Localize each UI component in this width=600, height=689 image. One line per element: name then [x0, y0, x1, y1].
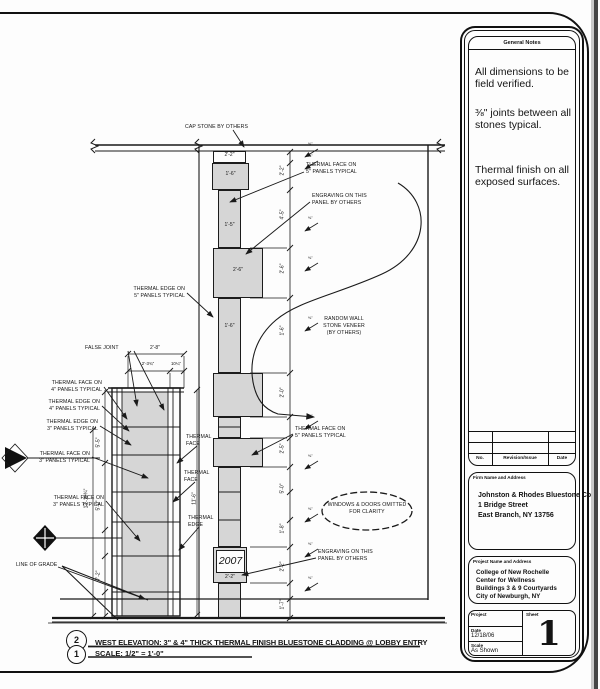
drawing-sheet: 2007 — [0, 0, 600, 689]
string-dim: 1'-6" — [281, 321, 286, 341]
string-dim: 5'-0" — [281, 479, 286, 499]
joint-marker-label: ⅜" — [308, 155, 313, 159]
string-dim: 1'-8" — [281, 519, 286, 539]
stone-column-segment — [218, 298, 241, 373]
sheet-number: 1 — [522, 612, 576, 656]
engraving-2007-text: 2007 — [216, 550, 245, 573]
annotation-thermal-face-3a: THERMAL FACE ON 3" PANELS TYPICAL — [30, 451, 90, 465]
dim-2007: 2'-2" — [213, 575, 247, 580]
joint-marker-label: ⅜" — [308, 455, 313, 459]
joint-marker-label: ⅜" — [308, 143, 313, 147]
annotation-thermal-edge-3: THERMAL EDGE ON 3" PANELS TYPICAL — [38, 419, 98, 433]
project-line3: Buildings 3 & 9 Courtyards — [476, 585, 557, 592]
dim-pillar-height: 11'-6" — [193, 487, 198, 511]
joint-marker-label: ⅜" — [308, 257, 313, 261]
revision-col-date: Date — [548, 456, 576, 461]
annotation-engraving-bottom: ENGRAVING ON THIS PANEL BY OTHERS — [318, 549, 373, 563]
dim-col1: 1'-5" — [212, 223, 247, 228]
dim-pillar-width2: 2'-3¾" — [128, 362, 168, 366]
joint-marker-label: ⅜" — [308, 317, 313, 321]
string-dim: 2'-6" — [281, 259, 286, 279]
dim-left-c: 7'-2" — [97, 564, 102, 588]
general-notes-title-rule — [469, 49, 575, 50]
string-dim: 2'-2" — [281, 557, 286, 577]
detail-number-top-text: 2 — [74, 635, 79, 645]
stone-panel — [213, 438, 263, 467]
string-dim: 4'-5" — [281, 205, 286, 225]
dim-pillar-width3: 10¼" — [164, 362, 188, 366]
stone-column-segment — [218, 190, 241, 248]
stone-column-segment — [218, 417, 241, 438]
stone-column-segment — [218, 583, 241, 618]
detail-number-bottom: 1 — [67, 645, 86, 664]
joint-marker-label: ⅜" — [308, 217, 313, 221]
string-dim: 2'-0" — [281, 383, 286, 403]
dim-panel-a: 1'-6" — [212, 172, 249, 177]
joint-marker-label: ⅜" — [308, 577, 313, 581]
general-note-2: ⅜" joints between all stones typical. — [475, 107, 571, 132]
general-notes-box — [468, 36, 576, 466]
annotation-windows-note: WINDOWS & DOORS OMITTED FOR CLARITY — [324, 502, 410, 516]
annotation-thermal-face-4: THERMAL FACE ON 4" PANELS TYPICAL — [42, 380, 102, 394]
dim-pillar-width: 2'-8" — [133, 346, 177, 351]
revision-col-revision: Revision/Issue — [492, 456, 548, 461]
stone-panel — [213, 373, 263, 417]
stamp-divider-h1 — [468, 626, 522, 627]
project-line1: College of New Rochelle — [476, 569, 549, 576]
annotation-thermal-face-5-top: THERMAL FACE ON 5" PANELS TYPICAL — [306, 162, 357, 176]
annotation-line-of-grade: LINE OF GRADE — [16, 562, 57, 569]
project-line4: City of Newburgh, NY — [476, 593, 540, 600]
annotation-thermal-edge-4: THERMAL EDGE ON 4" PANELS TYPICAL — [40, 399, 100, 413]
joint-marker-label: ⅜" — [308, 508, 313, 512]
stamp-scale-value: As Shown — [471, 648, 498, 654]
project-label: Project Name and Address — [473, 559, 531, 564]
pillar-stone-body — [122, 392, 168, 616]
annotation-thermal-face-mid2: THERMAL FACE — [184, 470, 210, 484]
annotation-cap-stone: CAP STONE BY OTHERS — [185, 124, 248, 131]
firm-label: Firm Name and Address — [473, 475, 526, 480]
revision-col-no: No. — [468, 456, 492, 461]
annotation-false-joint: FALSE JOINT — [85, 345, 119, 352]
detail-number-bottom-text: 1 — [74, 649, 79, 659]
firm-line2: 1 Bridge Street — [478, 502, 528, 509]
string-dim: 2'-2" — [281, 161, 286, 181]
annotation-thermal-face-5-mid: THERMAL FACE ON 5" PANELS TYPICAL — [295, 426, 346, 440]
firm-line1: Johnston & Rhodes Bluestone Co. — [478, 492, 593, 499]
drawing-scale: SCALE: 1/2" = 1'-0" — [95, 649, 164, 658]
annotation-thermal-edge-5: THERMAL EDGE ON 5" PANELS TYPICAL — [125, 286, 185, 300]
firm-box — [468, 472, 576, 550]
string-dim: 2'-5" — [281, 439, 286, 459]
dim-left-a: 5'-5" — [97, 431, 102, 455]
dim-col2: 1'-6" — [212, 324, 247, 329]
stamp-divider-h2 — [468, 641, 522, 642]
firm-line3: East Branch, NY 13756 — [478, 512, 554, 519]
dim-left-b: 5'-0" — [97, 494, 102, 518]
scan-edge-dark — [594, 0, 598, 689]
drawing-title: WEST ELEVATION: 3" & 4" THICK THERMAL FI… — [95, 638, 427, 647]
project-line2: Center for Wellness — [476, 577, 535, 584]
stone-column-segment — [218, 467, 241, 547]
stone-panel-engraved — [213, 248, 263, 298]
string-dim: 1'-7" — [281, 595, 286, 615]
annotation-thermal-face-mid: THERMAL FACE — [186, 434, 212, 448]
joint-marker-label: ⅜" — [308, 415, 313, 419]
stamp-project-label: Project — [471, 612, 487, 617]
general-notes-title: General Notes — [468, 40, 576, 46]
annotation-engraving-top: ENGRAVING ON THIS PANEL BY OTHERS — [312, 193, 367, 207]
dim-cap: 2'-2" — [213, 153, 246, 158]
annotation-thermal-edge-mid: THERMAL EDGE — [188, 515, 214, 529]
stamp-date-value: 12/18/06 — [471, 633, 494, 639]
dim-left-total: 13'-10¾" — [85, 483, 90, 515]
general-note-3: Thermal finish on all exposed surfaces. — [475, 164, 571, 189]
general-note-1: All dimensions to be field verified. — [475, 66, 571, 91]
joint-marker-label: ⅜" — [308, 543, 313, 547]
dim-panel-b: 2'-6" — [213, 268, 263, 273]
